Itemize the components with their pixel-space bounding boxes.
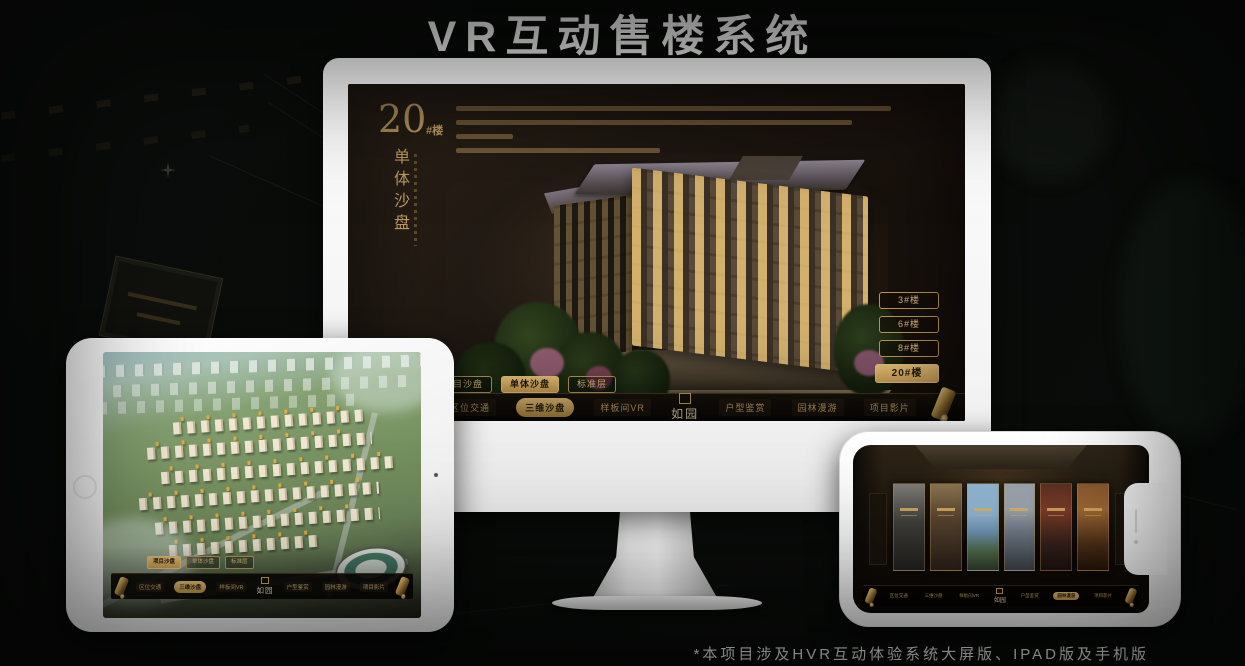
- brand-logo: 如园: [994, 588, 1006, 604]
- scene-card[interactable]: [930, 483, 962, 571]
- seal-icon: [996, 588, 1003, 594]
- scene-card[interactable]: [1040, 483, 1072, 571]
- scene-card[interactable]: [967, 483, 999, 571]
- speaker-icon: [1135, 509, 1137, 533]
- page-title: VR互动售楼系统: [0, 2, 1245, 64]
- scene-card[interactable]: [1004, 483, 1036, 571]
- nav-item-project-film[interactable]: 项目影片: [1092, 592, 1114, 600]
- brand-logo-text: 如园: [994, 595, 1006, 604]
- phone-nav-bar: 区位交通 三维沙盘 样板间VR 如园 户型鉴赏 园林漫游 项目影片: [863, 585, 1139, 606]
- nav-item-showroom-vr[interactable]: 样板间VR: [957, 592, 981, 600]
- ceiling-beam: [915, 445, 1087, 469]
- scene-gallery: [893, 483, 1109, 573]
- nav-item-unit-gallery[interactable]: 户型鉴赏: [1019, 592, 1041, 600]
- scroll-menu-icon[interactable]: [1124, 587, 1137, 605]
- gallery-panel-partial: [869, 493, 887, 565]
- footnote: *本项目涉及HVR互动体验系统大屏版、IPAD版及手机版: [694, 643, 1149, 664]
- phone-notch: [1124, 483, 1167, 575]
- phone-screen: 区位交通 三维沙盘 样板间VR 如园 户型鉴赏 园林漫游 项目影片: [853, 445, 1149, 613]
- nav-item-3d-sandbox[interactable]: 三维沙盘: [923, 592, 945, 600]
- promo-stage: VR互动售楼系统 20 #楼 单体沙盘: [0, 0, 1245, 666]
- nav-item-garden-roam[interactable]: 园林漫游: [1053, 592, 1079, 600]
- camera-dot-icon: [1134, 540, 1138, 544]
- scroll-menu-icon[interactable]: [864, 587, 877, 605]
- phone-frame: 区位交通 三维沙盘 样板间VR 如园 户型鉴赏 园林漫游 项目影片: [839, 431, 1181, 627]
- scene-card[interactable]: [893, 483, 925, 571]
- phone-device: 区位交通 三维沙盘 样板间VR 如园 户型鉴赏 园林漫游 项目影片: [0, 0, 1245, 666]
- nav-item-transport[interactable]: 区位交通: [888, 592, 910, 600]
- scene-card[interactable]: [1077, 483, 1109, 571]
